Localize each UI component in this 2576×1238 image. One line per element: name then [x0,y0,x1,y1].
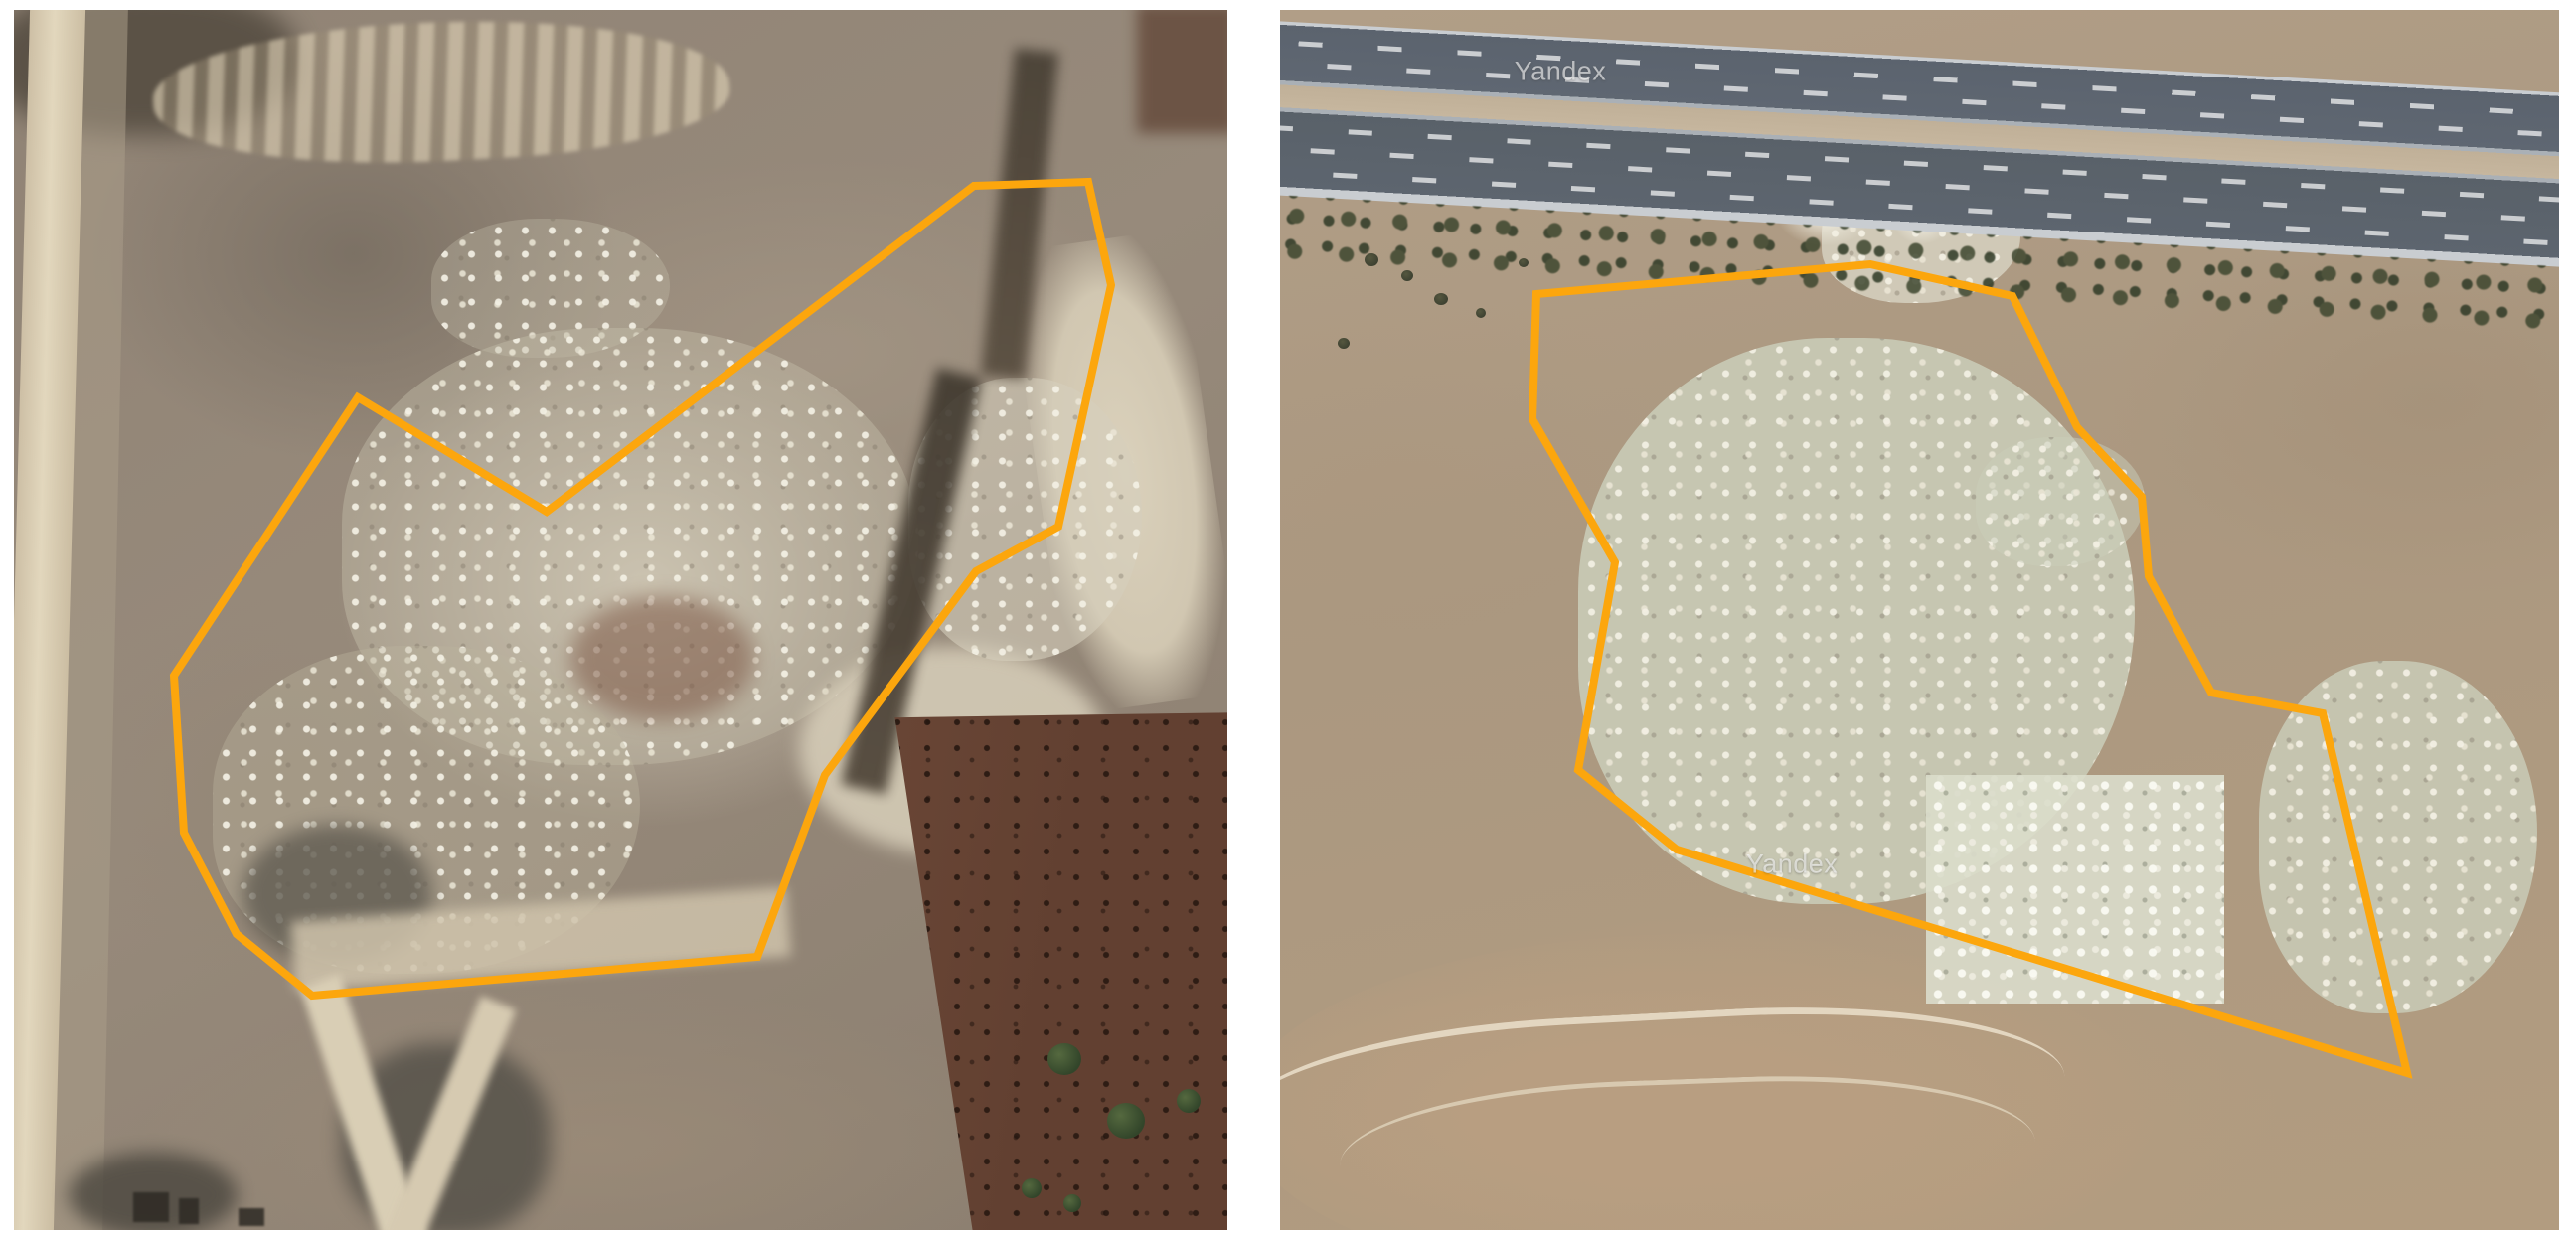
tree [1107,1103,1145,1139]
tree [1063,1194,1081,1212]
bush [1476,308,1486,318]
tree [1022,1178,1042,1198]
dark-structure [239,1208,264,1226]
yandex-watermark: Yandex [1515,57,1607,87]
satellite-image-right[interactable]: Yandex Yandex [1280,10,2559,1230]
yandex-watermark: Yandex [1746,850,1839,880]
dark-structure [179,1198,199,1224]
terrain-patch [1137,10,1227,133]
dark-structure [133,1192,169,1222]
figure-canvas: Yandex Yandex [0,0,2576,1238]
bush [1338,338,1350,349]
terrain-patch [570,596,754,720]
tree [1177,1089,1201,1113]
bush [1401,270,1413,281]
lane-marking [1280,122,2559,208]
rock-rubble-dense [1926,775,2224,1004]
tree [1047,1043,1081,1075]
bush [1434,293,1448,305]
satellite-image-left[interactable] [14,10,1227,1230]
